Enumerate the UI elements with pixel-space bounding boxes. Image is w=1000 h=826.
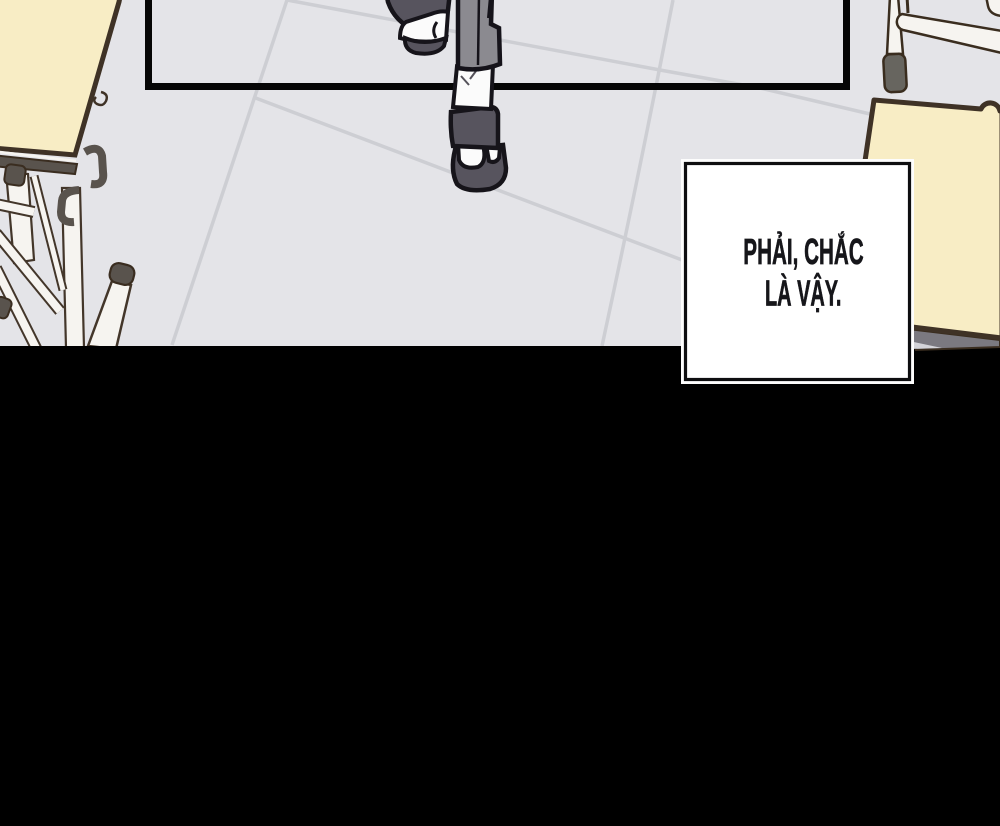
svg-text:LÀ VẬY.: LÀ VẬY.	[765, 273, 842, 313]
svg-text:PHẢI, CHẮC: PHẢI, CHẮC	[743, 232, 863, 272]
